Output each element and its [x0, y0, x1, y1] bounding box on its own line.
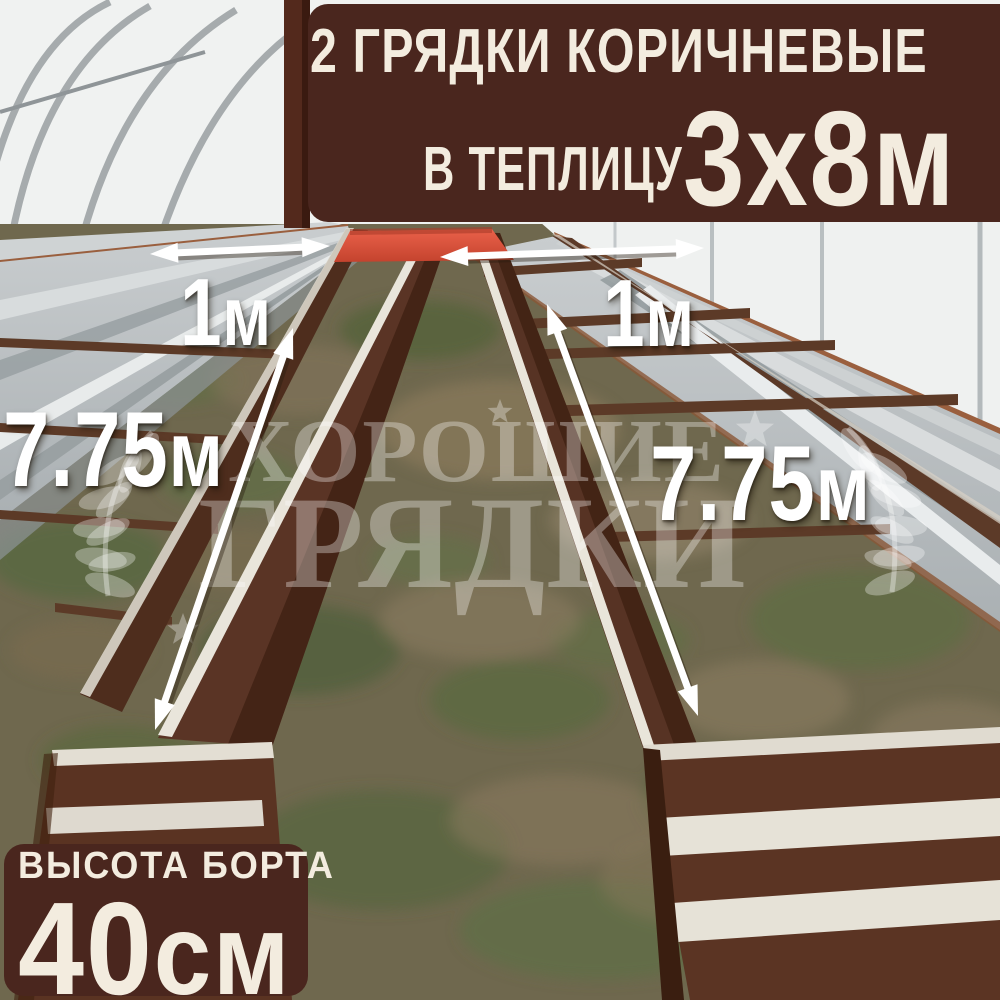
bed-width-label-left: 1м: [180, 265, 272, 361]
board-height-badge: ВЫСОТА БОРТА 40см: [4, 844, 308, 996]
bed-length-label-left: 7.75м: [3, 396, 224, 503]
banner-line2-prefix: В ТЕПЛИЦУ: [423, 139, 683, 201]
red-end-panel: [334, 227, 514, 262]
product-image: ХОРОШИЕ ГРЯДКИ: [0, 0, 1000, 1000]
banner-line1: 2 ГРЯДКИ КОРИЧНЕВЫЕ: [310, 21, 928, 83]
banner-size: 3х8м: [683, 91, 956, 226]
bed-width-label-right: 1м: [603, 266, 695, 362]
title-banner: 2 ГРЯДКИ КОРИЧНЕВЫЕ В ТЕПЛИЦУ 3х8м: [308, 4, 1000, 222]
bed-length-label-right: 7.75м: [650, 430, 871, 537]
badge-value: 40см: [18, 883, 291, 1000]
door-post: [284, 0, 310, 228]
